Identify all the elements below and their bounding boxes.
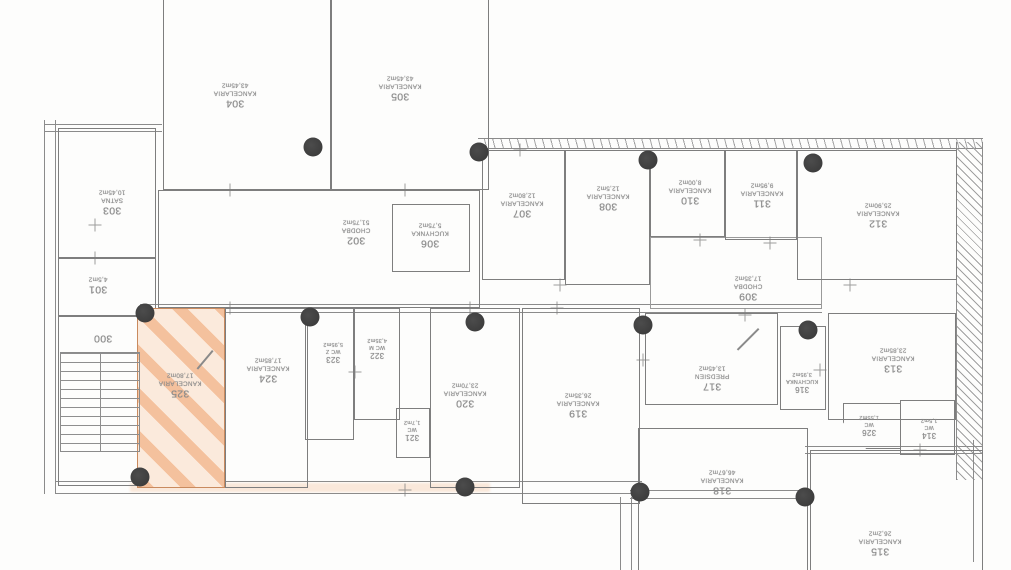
room-325-ar: 17,80m2 xyxy=(159,371,202,379)
dimension-cross xyxy=(399,184,412,197)
room-label-326: 326WC1,55m2 xyxy=(859,413,879,437)
room-303-num: 303 xyxy=(99,203,126,216)
room-305-nm: KANCELARIA xyxy=(379,81,422,89)
room-309-ar: 17,35m2 xyxy=(734,274,763,282)
room-317-ar: 13,45m2 xyxy=(695,364,730,372)
room-label-309: 309CHODBA17,35m2 xyxy=(734,274,763,303)
room-label-324: 324KANCELARIA17,85m2 xyxy=(247,356,290,385)
floor-plan-scan: 3003014,5m2302CHODBA51,75m2303SATNA10,45… xyxy=(0,0,1011,570)
room-326-nm: WC xyxy=(859,420,879,427)
room-321-nm: WC xyxy=(404,425,420,432)
column-dot xyxy=(131,468,150,487)
room-312-ar: 25,90m2 xyxy=(857,201,900,209)
room-325-num: 325 xyxy=(159,386,202,399)
room-label-314: 314WC1,5m2 xyxy=(921,416,937,440)
room-label-311: 311KANCELARIA9,95m2 xyxy=(741,181,784,210)
room-325-nm: KANCELARIA xyxy=(159,378,202,386)
room-302-num: 302 xyxy=(342,233,371,246)
column-dot xyxy=(634,316,653,335)
room-322-nm: WC M xyxy=(367,343,387,350)
room-319-ar: 26,35m2 xyxy=(557,391,600,399)
room-315-nm: KANCELARIA xyxy=(859,536,902,544)
room-306-num: 306 xyxy=(411,236,448,249)
room-312-nm: KANCELARIA xyxy=(857,208,900,216)
dimension-cross xyxy=(224,302,237,315)
room-314-num: 314 xyxy=(921,430,937,440)
room-label-307: 307KANCELARIA12,80m2 xyxy=(501,191,544,220)
room-314-nm: WC xyxy=(921,423,937,430)
room-322-ar: 4,35m2 xyxy=(367,336,387,343)
dimension-cross xyxy=(554,279,567,292)
room-323-ar: 5,95m2 xyxy=(323,340,343,347)
room-label-305: 305KANCELARIA43,45m2 xyxy=(379,74,422,103)
column-dot xyxy=(301,308,320,327)
room-303-nm: SATNA xyxy=(99,195,126,203)
room-320-ar: 23,70m2 xyxy=(444,381,487,389)
room-label-315: 315KANCELARIA26,2m2 xyxy=(859,529,902,558)
room-313-ar: 23,85m2 xyxy=(872,346,915,354)
dimension-cross xyxy=(399,484,412,497)
room-311-nm: KANCELARIA xyxy=(741,188,784,196)
room-318 xyxy=(638,428,808,570)
room-306-nm: KUCHYNKA xyxy=(411,228,448,236)
room-315-num: 315 xyxy=(859,544,902,557)
room-label-318: 318KANCELARIA46,67m2 xyxy=(701,468,744,497)
room-label-322: 322WC M4,35m2 xyxy=(367,336,387,360)
dimension-cross xyxy=(844,279,857,292)
room-324-ar: 17,85m2 xyxy=(247,356,290,364)
room-318-nm: KANCELARIA xyxy=(701,475,744,483)
room-310-ar: 8,00m2 xyxy=(669,178,712,186)
room-label-302: 302CHODBA51,75m2 xyxy=(342,218,371,247)
room-308-nm: KANCELARIA xyxy=(587,191,630,199)
room-302-ar: 51,75m2 xyxy=(342,218,371,226)
room-320-nm: KANCELARIA xyxy=(444,388,487,396)
column-dot xyxy=(136,304,155,323)
dimension-cross xyxy=(551,302,564,315)
room-323-num: 323 xyxy=(323,354,343,364)
room-307-nm: KANCELARIA xyxy=(501,198,544,206)
room-324-num: 324 xyxy=(247,371,290,384)
room-label-320: 320KANCELARIA23,70m2 xyxy=(444,381,487,410)
room-label-300: 300 xyxy=(94,331,112,344)
room-label-312: 312KANCELARIA25,90m2 xyxy=(857,201,900,230)
room-303-ar: 10,45m2 xyxy=(99,188,126,196)
room-305-num: 305 xyxy=(379,89,422,102)
dimension-cross xyxy=(349,366,362,379)
room-label-303: 303SATNA10,45m2 xyxy=(99,188,126,217)
dimension-cross xyxy=(464,302,477,315)
column-dot xyxy=(466,313,485,332)
room-label-304: 304KANCELARIA43,45m2 xyxy=(214,81,257,110)
room-322 xyxy=(354,308,400,420)
dimension-cross xyxy=(914,444,927,457)
room-326-num: 326 xyxy=(859,427,879,437)
room-321-ar: 1,7m2 xyxy=(404,418,420,425)
room-316-num: 316 xyxy=(786,384,818,394)
room-314-ar: 1,5m2 xyxy=(921,416,937,423)
room-319-num: 319 xyxy=(557,406,600,419)
column-dot xyxy=(304,138,323,157)
room-311-ar: 9,95m2 xyxy=(741,181,784,189)
room-304-nm: KANCELARIA xyxy=(214,88,257,96)
room-label-310: 310KANCELARIA8,00m2 xyxy=(669,178,712,207)
room-301-ar: 4,5m2 xyxy=(88,275,107,283)
room-301-num: 301 xyxy=(88,282,107,295)
room-307-num: 307 xyxy=(501,206,544,219)
room-308-ar: 12,5m2 xyxy=(587,184,630,192)
room-308 xyxy=(565,150,650,285)
room-313-nm: KANCELARIA xyxy=(872,353,915,361)
room-323 xyxy=(305,308,354,440)
room-316-nm: KUCHYNKA xyxy=(786,377,818,384)
room-307-ar: 12,80m2 xyxy=(501,191,544,199)
room-308-num: 308 xyxy=(587,199,630,212)
room-315-ar: 26,2m2 xyxy=(859,529,902,537)
column-dot xyxy=(470,143,489,162)
room-label-317: 317PREDSIEN13,45m2 xyxy=(695,364,730,393)
room-label-325: 325KANCELARIA17,80m2 xyxy=(159,371,202,400)
outer-wall-right xyxy=(956,142,983,480)
room-320-num: 320 xyxy=(444,396,487,409)
room-label-301: 3014,5m2 xyxy=(88,275,107,296)
room-label-323: 323WC Z5,95m2 xyxy=(323,340,343,364)
wing-wall-left xyxy=(620,497,632,570)
column-dot xyxy=(456,478,475,497)
room-323-nm: WC Z xyxy=(323,347,343,354)
dimension-cross xyxy=(514,144,527,157)
dimension-cross xyxy=(694,234,707,247)
dimension-cross xyxy=(739,309,752,322)
staircase xyxy=(60,352,140,452)
room-label-308: 308KANCELARIA12,5m2 xyxy=(587,184,630,213)
room-305-ar: 43,45m2 xyxy=(379,74,422,82)
room-312-num: 312 xyxy=(857,216,900,229)
column-dot xyxy=(796,488,815,507)
room-302-nm: CHODBA xyxy=(342,225,371,233)
room-326-ar: 1,55m2 xyxy=(859,413,879,420)
outer-wall-left xyxy=(44,120,56,494)
column-dot xyxy=(631,483,650,502)
room-300-num: 300 xyxy=(94,331,112,344)
room-317-num: 317 xyxy=(695,379,730,392)
outer-wall-top xyxy=(478,138,983,149)
room-321-num: 321 xyxy=(404,432,420,442)
room-309-nm: CHODBA xyxy=(734,281,763,289)
room-322-num: 322 xyxy=(367,350,387,360)
dimension-cross xyxy=(814,364,827,377)
room-318-ar: 46,67m2 xyxy=(701,468,744,476)
room-313-num: 313 xyxy=(872,361,915,374)
room-label-306: 306KUCHYNKA5,75m2 xyxy=(411,221,448,250)
dimension-cross xyxy=(764,237,777,250)
room-304-ar: 43,45m2 xyxy=(214,81,257,89)
room-306-ar: 5,75m2 xyxy=(411,221,448,229)
room-318-num: 318 xyxy=(701,483,744,496)
room-label-321: 321WC1,7m2 xyxy=(404,418,420,442)
room-311-num: 311 xyxy=(741,196,784,209)
column-dot xyxy=(804,154,823,173)
room-324-nm: KANCELARIA xyxy=(247,363,290,371)
room-310-num: 310 xyxy=(669,193,712,206)
room-label-319: 319KANCELARIA26,35m2 xyxy=(557,391,600,420)
room-324 xyxy=(225,308,308,488)
room-304-num: 304 xyxy=(214,96,257,109)
dimension-cross xyxy=(224,184,237,197)
room-309-num: 309 xyxy=(734,289,763,302)
room-317-nm: PREDSIEN xyxy=(695,371,730,379)
room-label-313: 313KANCELARIA23,85m2 xyxy=(872,346,915,375)
column-dot xyxy=(639,151,658,170)
dimension-cross xyxy=(89,219,102,232)
dimension-cross xyxy=(89,252,102,265)
room-310-nm: KANCELARIA xyxy=(669,185,712,193)
dimension-cross xyxy=(637,354,650,367)
room-319-nm: KANCELARIA xyxy=(557,398,600,406)
column-dot xyxy=(799,321,818,340)
